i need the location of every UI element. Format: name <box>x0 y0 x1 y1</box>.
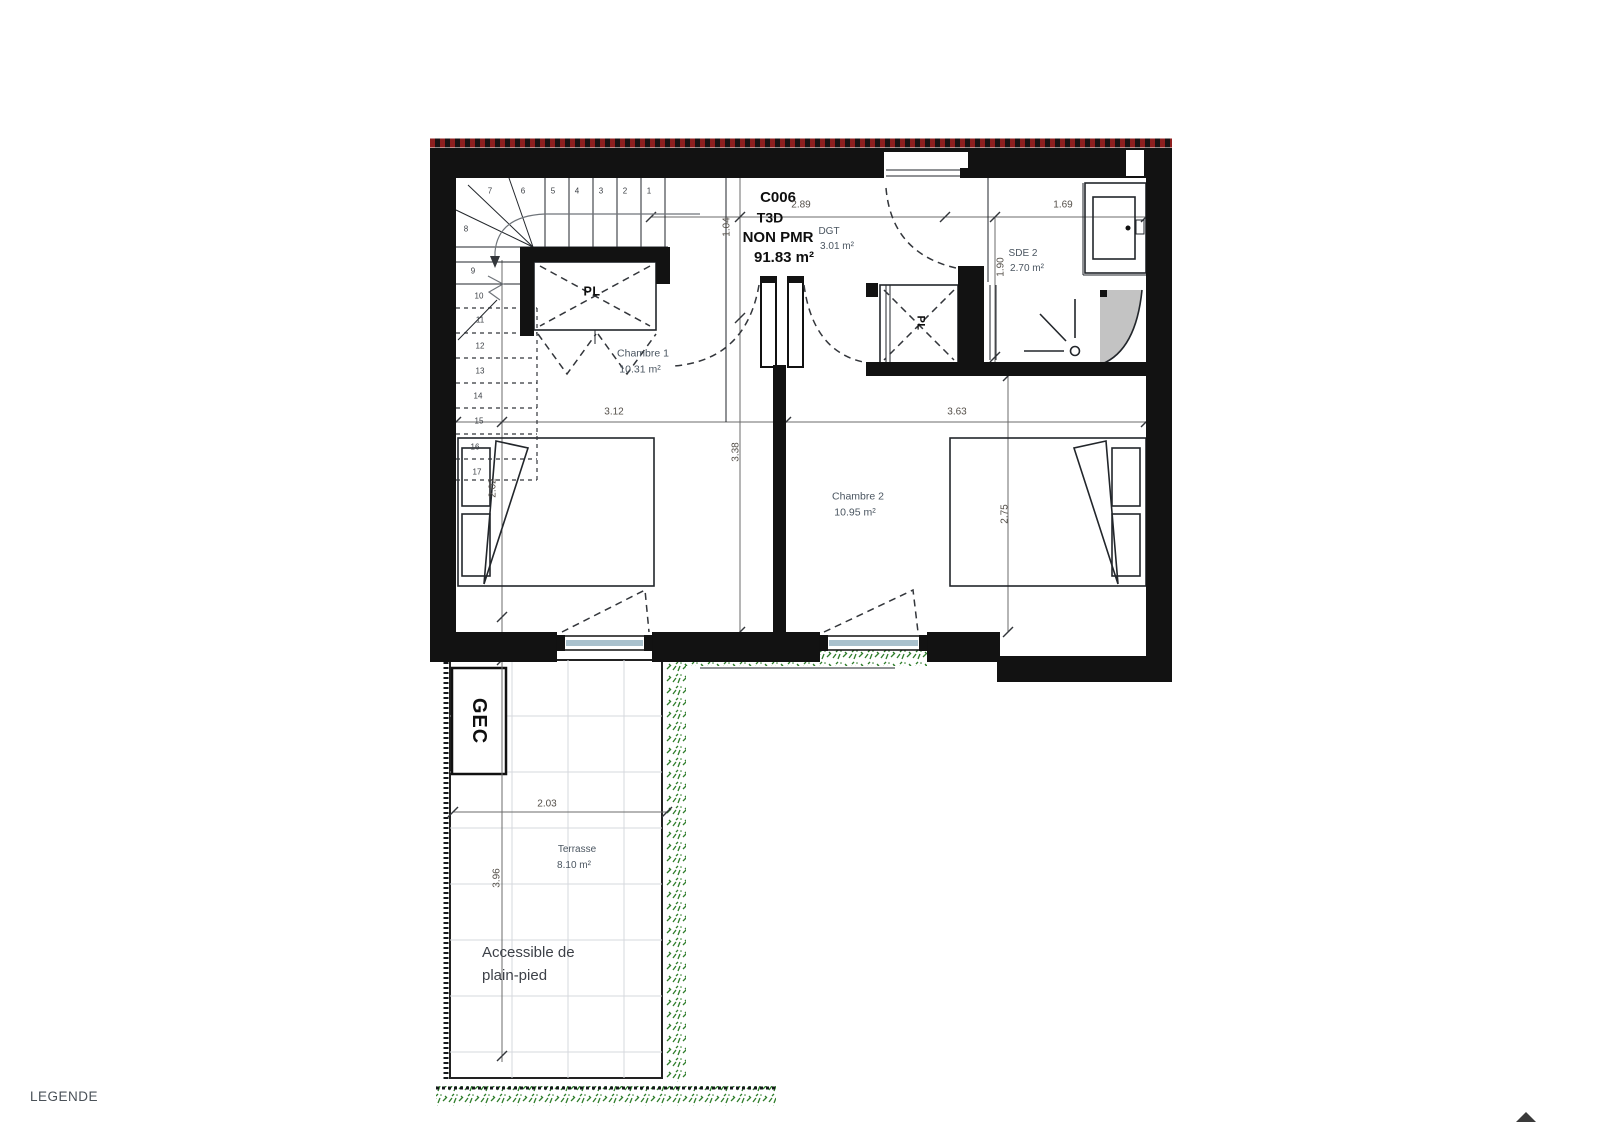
shower-screen <box>1100 290 1142 364</box>
terrace-note-line1: Accessible de <box>482 944 575 962</box>
stair-step-number: 7 <box>488 187 492 196</box>
stair-step-number: 10 <box>475 292 484 301</box>
stair-step-number: 5 <box>551 187 555 196</box>
unit-area: 91.83 m² <box>754 249 814 267</box>
dimension-label: 2.75 <box>1000 504 1011 523</box>
stair-step-number: 13 <box>476 367 485 376</box>
stair-step-number: 6 <box>521 187 525 196</box>
room-area-dgt: 3.01 m² <box>820 241 854 253</box>
dimension-label: 1.69 <box>1053 200 1072 211</box>
dimension-label: 2.89 <box>791 200 810 211</box>
stair-step-number: 2 <box>623 187 627 196</box>
room-label-dgt: DGT <box>818 226 839 238</box>
shower-drain <box>1024 299 1080 356</box>
stair-step-number: 8 <box>464 225 468 234</box>
stair-step-number: 15 <box>475 417 484 426</box>
dimension-label: 2.02 <box>488 478 499 497</box>
sliding-window-top <box>884 152 970 178</box>
unit-type: T3D <box>757 210 783 227</box>
stair-step-number: 17 <box>473 468 482 477</box>
room-label-sde2: SDE 2 <box>1009 248 1038 260</box>
stair-step-number: 14 <box>474 392 483 401</box>
room-label-chambre1: Chambre 1 <box>617 348 669 361</box>
washbasin <box>1083 183 1146 275</box>
dimension-label: 3.38 <box>731 442 742 461</box>
dimension-label: 3.12 <box>604 407 623 418</box>
north-arrow-partial <box>1516 1112 1536 1122</box>
terrace-note-line2: plain-pied <box>482 967 547 985</box>
stair-step-number: 9 <box>471 267 475 276</box>
floor-plan-drawing <box>0 0 1600 1122</box>
stair-step-number: 16 <box>471 443 480 452</box>
room-label-chambre2: Chambre 2 <box>832 491 884 504</box>
bed-chambre1 <box>458 438 654 586</box>
bed-chambre2 <box>950 438 1146 586</box>
room-area-chambre1: 10.31 m² <box>619 364 660 377</box>
gec-duct-label: GEC <box>467 698 491 744</box>
dimension-label: 3.96 <box>492 868 503 887</box>
bedroom-separation <box>674 277 878 367</box>
stair-step-number: 11 <box>476 316 484 325</box>
door-swing-sde2 <box>886 188 966 270</box>
staircase <box>456 178 726 480</box>
closet2-label: PL <box>913 315 926 330</box>
closet1-label: PL <box>584 285 601 300</box>
dimension-label: 2.03 <box>537 799 556 810</box>
walls <box>430 143 1172 682</box>
room-label-terrasse: Terrasse <box>558 844 596 856</box>
floor-plan-canvas: C006 T3D NON PMR 91.83 m² DGT 3.01 m² SD… <box>0 0 1600 1122</box>
unit-accessibility: NON PMR <box>743 229 814 247</box>
stair-step-number: 3 <box>599 187 603 196</box>
dimension-label: 1.04 <box>722 217 733 236</box>
dimension-label: 1.90 <box>996 257 1007 276</box>
room-area-chambre2: 10.95 m² <box>834 507 875 520</box>
stair-step-number: 1 <box>647 187 651 196</box>
legend-title: LEGENDE <box>30 1089 98 1105</box>
window-chambre1 <box>557 590 652 651</box>
wall-notch <box>1126 150 1144 176</box>
stair-step-number: 12 <box>476 342 485 351</box>
stair-step-number: 4 <box>575 187 579 196</box>
dimension-label: 3.63 <box>947 407 966 418</box>
door-swing-chambre1 <box>674 285 759 366</box>
window-chambre2 <box>820 590 927 651</box>
room-area-sde2: 2.70 m² <box>1010 263 1044 275</box>
room-area-terrasse: 8.10 m² <box>557 860 591 872</box>
